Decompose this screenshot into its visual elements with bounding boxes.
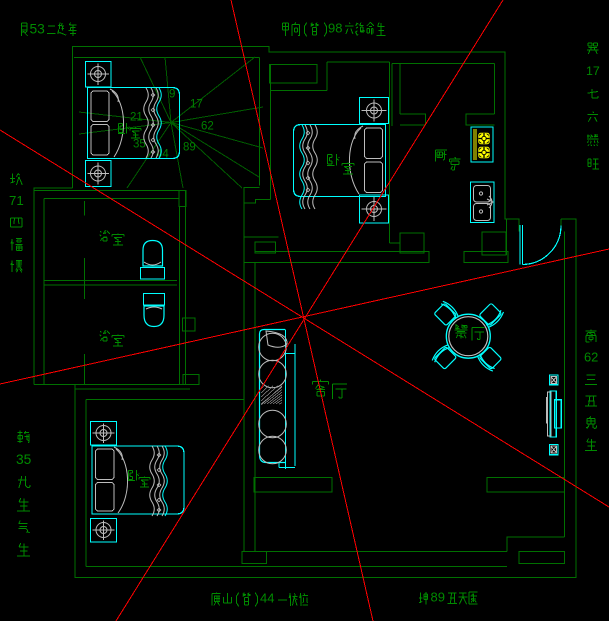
svg-text:89: 89 (183, 141, 196, 153)
svg-text:35: 35 (16, 452, 32, 467)
svg-text:89: 89 (431, 590, 445, 605)
svg-text:21: 21 (130, 111, 143, 123)
svg-text:17: 17 (190, 98, 203, 110)
svg-text:62: 62 (201, 120, 214, 132)
svg-text:17: 17 (586, 64, 600, 78)
svg-text:98: 98 (328, 21, 342, 36)
svg-text:9: 9 (169, 88, 175, 100)
svg-text:71: 71 (9, 193, 24, 208)
svg-text:53: 53 (30, 21, 46, 36)
svg-text:44: 44 (260, 591, 274, 606)
svg-text:62: 62 (584, 349, 598, 364)
